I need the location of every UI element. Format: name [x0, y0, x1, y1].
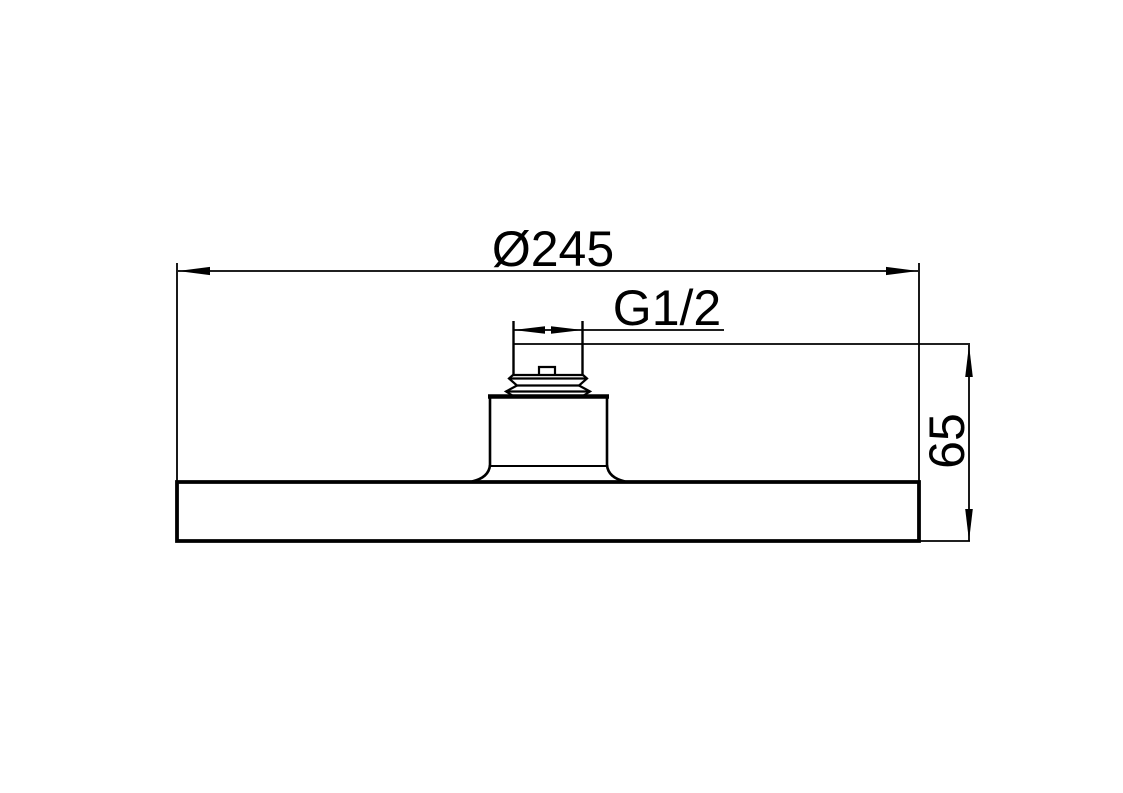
drawing-canvas: Ø245 G1/2 65 — [0, 0, 1123, 793]
height-dimension-label: 65 — [919, 413, 975, 469]
dimension-thread: G1/2 — [514, 280, 725, 336]
collar-tab — [539, 367, 555, 375]
collar-ring-lines — [506, 379, 590, 392]
arrowhead-left-icon — [178, 267, 210, 275]
connector-body-sides — [490, 398, 607, 466]
showerhead-technical-drawing: Ø245 G1/2 65 — [0, 0, 1123, 793]
arrowhead-right-icon — [886, 267, 918, 275]
connector-collar — [506, 367, 590, 397]
thread-dimension-label: G1/2 — [613, 280, 721, 336]
arrowhead-up-icon — [965, 345, 973, 377]
shower-plate — [177, 482, 919, 541]
connector-skirt-fillets — [472, 465, 625, 482]
arrowhead-down-icon — [965, 509, 973, 541]
dimension-diameter: Ø245 — [177, 221, 919, 482]
showerhead-outline — [177, 321, 919, 541]
arrowhead-left-icon — [514, 326, 546, 334]
diameter-dimension-label: Ø245 — [492, 221, 614, 277]
arrowhead-right-icon — [551, 326, 583, 334]
diameter-extension-lines — [177, 263, 919, 482]
